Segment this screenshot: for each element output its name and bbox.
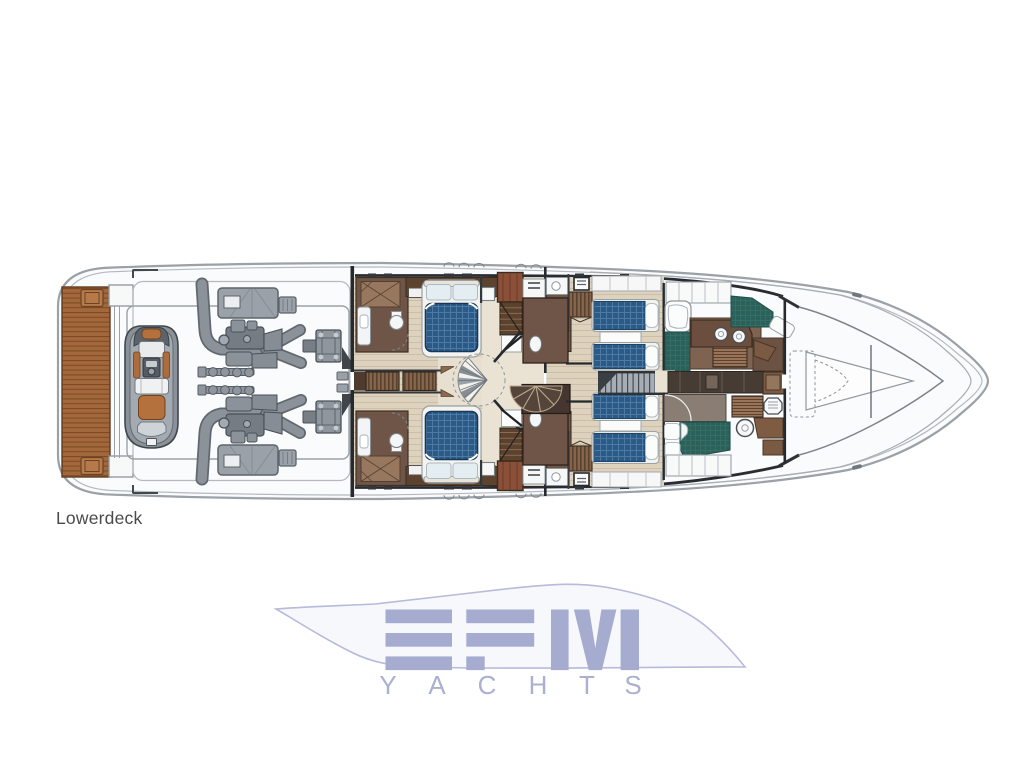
svg-text:S: S: [624, 670, 641, 700]
svg-text:H: H: [529, 670, 548, 700]
svg-text:T: T: [579, 670, 595, 700]
svg-text:Lowerdeck: Lowerdeck: [56, 508, 142, 528]
svg-text:C: C: [478, 670, 497, 700]
svg-text:Y: Y: [379, 670, 396, 700]
svg-text:A: A: [428, 670, 446, 700]
